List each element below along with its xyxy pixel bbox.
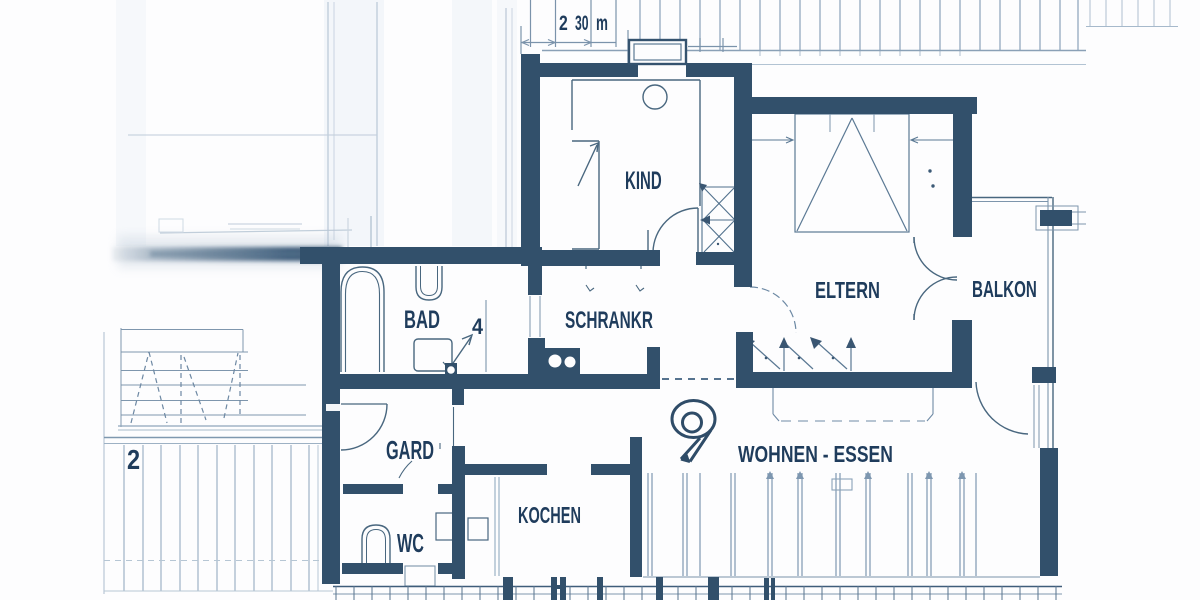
svg-text:WC: WC xyxy=(397,528,424,558)
svg-text:4: 4 xyxy=(472,315,483,339)
svg-text:BALKON: BALKON xyxy=(972,277,1037,303)
svg-text:30: 30 xyxy=(575,10,589,34)
svg-text:BAD: BAD xyxy=(404,307,440,334)
svg-text:2: 2 xyxy=(559,11,568,35)
svg-text:KOCHEN: KOCHEN xyxy=(518,504,581,529)
svg-text:2: 2 xyxy=(127,445,140,475)
svg-text:WOHNEN - ESSEN: WOHNEN - ESSEN xyxy=(738,442,893,468)
svg-text:m: m xyxy=(596,11,608,35)
svg-text:ELTERN: ELTERN xyxy=(815,278,880,303)
svg-text:SCHRANKR: SCHRANKR xyxy=(565,308,653,334)
svg-text:KIND: KIND xyxy=(625,167,662,195)
svg-text:GARD: GARD xyxy=(386,435,434,465)
